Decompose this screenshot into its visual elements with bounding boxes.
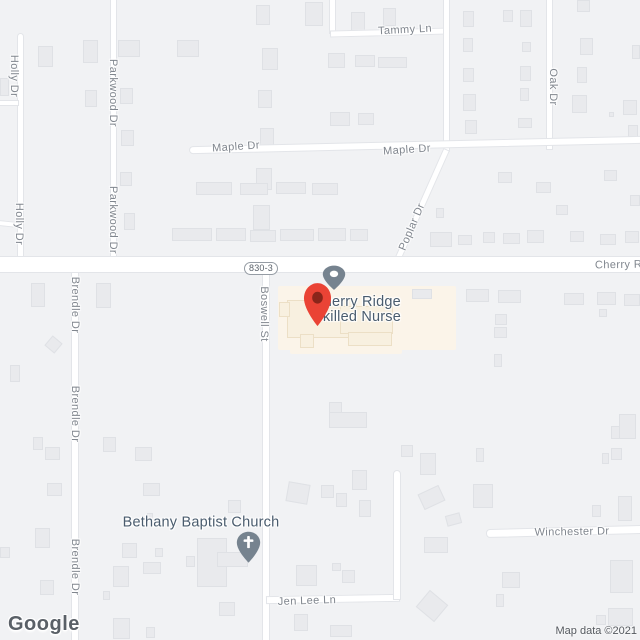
- building: [420, 453, 436, 475]
- route-shield-830-3: 830-3: [244, 262, 278, 275]
- building: [503, 233, 520, 244]
- building: [155, 548, 163, 557]
- building: [401, 445, 413, 457]
- building: [240, 183, 268, 195]
- building: [502, 572, 520, 588]
- building: [113, 618, 130, 639]
- road: [329, 0, 336, 34]
- building: [592, 505, 601, 517]
- building: [312, 183, 338, 195]
- street-label: Holly Dr: [8, 55, 20, 97]
- building: [430, 232, 452, 247]
- street-label: Boswell St: [258, 286, 270, 341]
- building: [146, 627, 155, 638]
- street-label: Cherry Ri: [595, 259, 640, 272]
- building: [118, 40, 140, 57]
- building: [143, 562, 161, 574]
- building: [336, 493, 347, 507]
- building: [253, 205, 270, 230]
- building: [120, 88, 133, 104]
- building: [630, 195, 640, 206]
- building: [599, 309, 607, 317]
- building: [35, 528, 50, 548]
- building: [564, 293, 584, 305]
- building: [122, 543, 137, 558]
- building: [463, 94, 476, 111]
- building: [520, 88, 529, 101]
- building: [600, 234, 616, 245]
- road: [393, 470, 401, 600]
- building: [294, 614, 308, 631]
- church-pin-icon[interactable]: [236, 531, 261, 564]
- building: [305, 2, 323, 26]
- building: [121, 130, 134, 146]
- map-attribution: Map data ©2021: [556, 625, 638, 637]
- building: [280, 229, 314, 241]
- building: [350, 229, 368, 241]
- building: [332, 563, 341, 571]
- building: [436, 208, 444, 218]
- building: [262, 48, 278, 70]
- google-logo[interactable]: Google: [8, 613, 80, 636]
- building: [45, 447, 60, 460]
- building: [330, 625, 352, 637]
- building: [503, 10, 513, 22]
- street-label: Tammy Ln: [378, 23, 432, 38]
- building: [103, 591, 110, 600]
- street-label: Holly Dr: [13, 203, 25, 245]
- building: [177, 40, 199, 57]
- building: [383, 8, 396, 26]
- building: [463, 38, 473, 52]
- building: [577, 0, 590, 12]
- building: [498, 290, 521, 303]
- building: [463, 11, 474, 27]
- building: [596, 615, 606, 625]
- building: [445, 512, 462, 527]
- building: [0, 547, 10, 558]
- building: [250, 230, 276, 242]
- building: [285, 481, 310, 505]
- building: [618, 496, 632, 521]
- building: [608, 608, 633, 626]
- building: [321, 485, 334, 498]
- street-label: Brendle Dr: [69, 277, 81, 334]
- building: [296, 565, 317, 586]
- building: [258, 90, 272, 108]
- road: [443, 0, 450, 152]
- building: [113, 566, 129, 587]
- building: [609, 112, 614, 117]
- building: [120, 172, 132, 186]
- building: [611, 426, 620, 439]
- building: [463, 68, 474, 82]
- building: [520, 66, 531, 81]
- building: [318, 228, 346, 241]
- building: [359, 500, 371, 517]
- building: [520, 10, 532, 27]
- building: [44, 335, 62, 353]
- building: [518, 118, 532, 128]
- building: [619, 414, 636, 439]
- building: [577, 67, 587, 83]
- street-label: Poplar Dr: [397, 202, 428, 253]
- building: [85, 90, 97, 107]
- building: [329, 412, 367, 428]
- building: [196, 182, 232, 195]
- building: [228, 500, 241, 513]
- building: [495, 314, 507, 325]
- building: [352, 470, 367, 490]
- road: [0, 256, 640, 273]
- road: [0, 100, 19, 106]
- poi-building: [348, 332, 392, 346]
- building: [522, 42, 531, 52]
- building: [355, 55, 375, 67]
- street-label: Brendle Dr: [69, 539, 81, 596]
- building: [610, 560, 633, 593]
- building: [47, 483, 62, 496]
- building: [342, 570, 355, 583]
- building: [473, 484, 493, 508]
- destination-pin-icon[interactable]: [303, 282, 332, 328]
- building: [143, 483, 160, 496]
- building: [580, 38, 593, 55]
- building: [83, 40, 98, 63]
- street-label: Maple Dr: [383, 142, 432, 157]
- poi-label-bethany-baptist-church[interactable]: Bethany Baptist Church: [123, 516, 280, 531]
- poi-building: [279, 302, 290, 317]
- street-label: Parkwood Dr: [107, 59, 119, 127]
- building: [172, 228, 212, 241]
- building: [624, 294, 640, 306]
- building: [31, 283, 45, 307]
- building: [602, 453, 609, 464]
- building: [556, 205, 568, 215]
- street-label: Winchester Dr: [534, 525, 609, 538]
- street-label: Jen Lee Ln: [278, 594, 337, 608]
- building: [494, 354, 502, 367]
- poi-building: [300, 334, 314, 348]
- building: [527, 230, 544, 243]
- building: [623, 100, 637, 115]
- map-canvas[interactable]: Holly DrHolly DrParkwood DrParkwood DrTa…: [0, 0, 640, 640]
- building: [33, 437, 43, 450]
- building: [358, 113, 374, 125]
- building: [96, 283, 111, 308]
- building: [498, 172, 512, 183]
- street-label: Parkwood Dr: [107, 186, 119, 254]
- building: [330, 112, 350, 126]
- building: [10, 365, 20, 382]
- building: [256, 5, 270, 25]
- building: [597, 292, 616, 305]
- building: [40, 580, 54, 595]
- building: [466, 289, 489, 302]
- building: [483, 232, 495, 243]
- street-label: Brendle Dr: [69, 386, 81, 443]
- building: [465, 120, 477, 134]
- building: [38, 46, 53, 67]
- building: [632, 45, 640, 59]
- building: [496, 594, 504, 607]
- building: [611, 448, 622, 460]
- building: [604, 170, 617, 181]
- building: [494, 327, 507, 338]
- building: [476, 448, 484, 462]
- building: [458, 235, 472, 245]
- building: [570, 231, 584, 242]
- building: [412, 289, 432, 299]
- building: [625, 231, 639, 243]
- building: [417, 485, 445, 510]
- building: [135, 447, 152, 461]
- building: [378, 57, 407, 68]
- street-label: Oak Dr: [547, 68, 559, 105]
- building: [572, 95, 587, 113]
- building: [216, 228, 246, 241]
- building: [536, 182, 551, 193]
- building: [424, 537, 448, 553]
- building: [276, 182, 306, 194]
- building: [186, 556, 195, 567]
- building: [416, 590, 449, 622]
- building: [219, 602, 235, 616]
- building: [103, 437, 116, 452]
- building: [328, 53, 345, 68]
- building: [124, 213, 135, 230]
